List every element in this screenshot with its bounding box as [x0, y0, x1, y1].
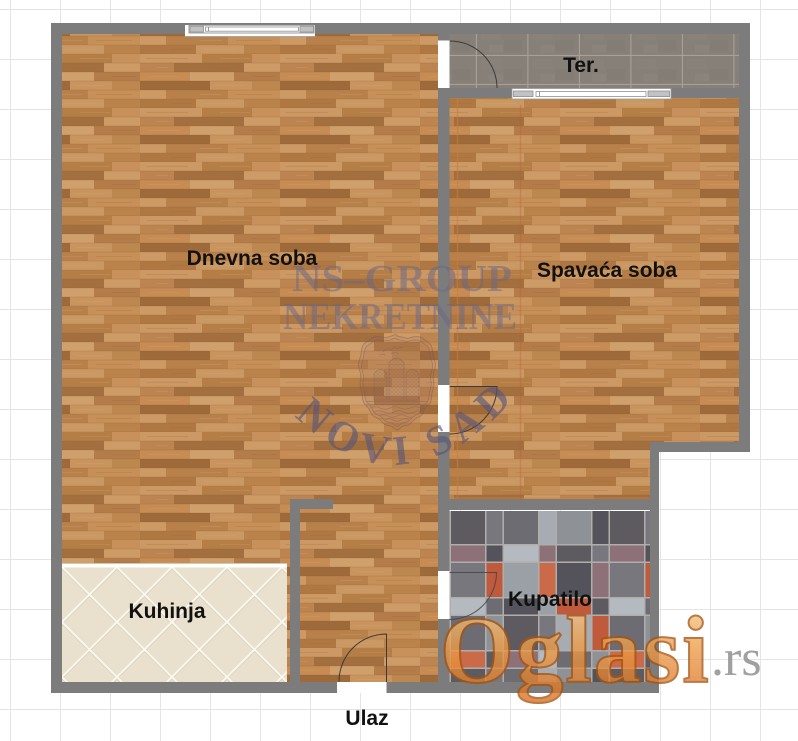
svg-text:Ulaz: Ulaz [345, 707, 388, 730]
svg-text:Oglasi: Oglasi [440, 597, 711, 703]
svg-text:.rs: .rs [711, 630, 762, 687]
svg-text:Kuhinja: Kuhinja [129, 600, 206, 623]
svg-text:NS–GROUP: NS–GROUP [292, 258, 512, 300]
svg-text:NEKRETNINE: NEKRETNINE [283, 296, 517, 338]
svg-text:Spavaća soba: Spavaća soba [537, 259, 677, 282]
svg-text:Ter.: Ter. [563, 54, 599, 77]
